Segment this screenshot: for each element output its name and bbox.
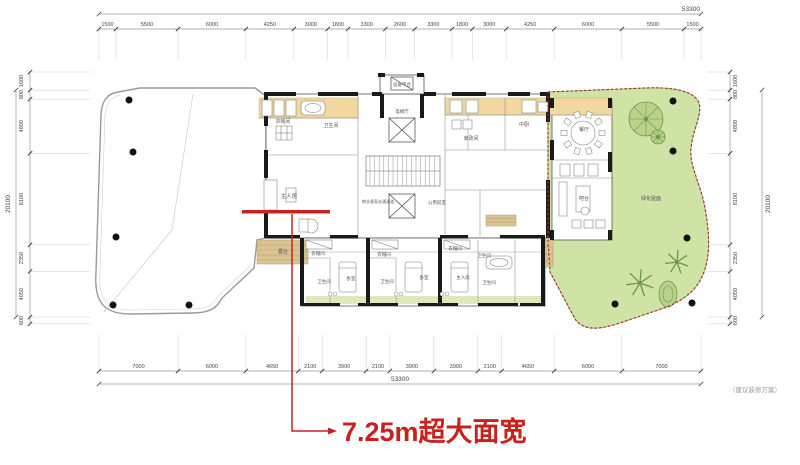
dim-label: 4650 [522,364,534,370]
bedroom-wing [302,238,545,306]
dim-label: 4800 [733,120,739,132]
dim-label: 800 [19,90,25,99]
dim-label: 6000 [206,22,218,28]
dimension-col-left: 16008004800810023504050600 [19,70,32,326]
witness-lines-left [30,72,90,324]
dim-label: 2100 [372,364,384,370]
witness-lines-top [99,29,701,60]
dim-label: 7000 [655,364,667,370]
total-height-right: 20100 [765,195,772,213]
total-width-bottom: 53300 [391,376,409,383]
room-label: 中厨 [519,121,529,128]
dim-label: 8100 [733,193,739,205]
renovation-note: （建议装修方案） [729,385,781,394]
dim-label: 2100 [484,364,496,370]
dim-label: 4050 [733,288,739,300]
column-dot [670,98,677,105]
room-label: 电梯厅 [395,108,409,115]
total-width-top: 53300 [682,6,700,13]
column-dot [130,149,137,156]
dimension-row-top: 1500550060004250300018003300260033001800… [97,22,703,31]
dim-label: 1800 [456,22,468,28]
dim-label: 3900 [406,364,418,370]
room-label: 物业垂直交通通道 [362,198,394,204]
dim-label: 600 [19,316,25,325]
dining-table [571,121,595,145]
column-dot [126,97,133,104]
dim-label: 3300 [427,22,439,28]
dim-label: 6000 [206,364,218,370]
column-dot [113,234,120,241]
dim-label: 4250 [524,22,536,28]
room-label: 设备平台 [393,81,411,88]
column-dot [110,302,117,309]
dimension-row-bottom: 7000600046502100390021003900390021004650… [97,364,703,373]
dim-label: 5500 [647,22,659,28]
dim-label: 1500 [101,22,113,28]
column-dot [689,300,696,307]
dim-label: 2350 [733,252,739,264]
room-label: 卫生间 [323,122,338,129]
dim-label: 8100 [19,193,25,205]
dim-label: 4050 [19,288,25,300]
room-label: 餐厅 [579,126,589,133]
dimension-col-right: 16008004800810023504050600 [728,70,739,326]
frontage-annotation: 7.25m超大面宽 [342,416,527,447]
dim-label: 800 [733,90,739,99]
dim-label: 5500 [141,22,153,28]
dim-label: 3000 [305,22,317,28]
room-label: 衣帽间 [377,251,391,258]
room-label: 卧室 [347,275,356,282]
room-label: 家政间 [463,135,478,142]
room-label: 衣帽间 [311,250,325,257]
balcony-strip [306,296,542,304]
witness-lines-bottom [99,335,701,371]
dim-label: 3900 [338,364,350,370]
column-dot [186,302,193,309]
room-label: 衣帽间 [275,118,290,125]
dim-label: 6000 [582,22,594,28]
room-label: 吧台 [579,195,589,202]
dim-label: 4800 [19,120,25,132]
room-label: 卫生间 [317,278,331,285]
column-dot [612,301,619,308]
dim-label: 3300 [361,22,373,28]
dim-label: 4250 [264,22,276,28]
dim-label: 3900 [450,364,462,370]
terrace-outline [96,88,266,314]
dim-label: 2100 [304,364,316,370]
dim-label: 1600 [19,75,25,87]
dim-label: 3000 [483,22,495,28]
total-height-left: 20100 [5,195,12,213]
dim-label: 1500 [686,22,698,28]
room-label: 主人房 [281,192,298,200]
dim-label: 6000 [582,364,594,370]
column-dot [670,148,677,155]
dim-label: 1800 [332,22,344,28]
room-label: 露台 [278,248,288,255]
red-highlight-line [242,210,330,214]
floor-plan-svg: 53300 53300 20100 20100 1500550060004250… [0,0,800,465]
dim-label: 2350 [19,252,25,264]
room-label: 衣帽间 [448,245,462,252]
room-label: 卫生间 [477,252,491,259]
room-label: 卫生间 [380,278,394,285]
dim-label: 600 [733,316,739,325]
witness-lines-right [708,72,730,324]
room-label: 公用前室 [428,199,446,206]
room-label: 主人房 [456,274,470,281]
floor-plan-canvas: 53300 53300 20100 20100 1500550060004250… [0,0,800,465]
room-label: 卧室 [420,274,429,281]
room-label: 绿化屋面 [641,195,661,202]
column-dot [684,235,691,242]
dim-label: 4650 [266,364,278,370]
dim-label: 7000 [132,364,144,370]
dim-label: 1600 [733,75,739,87]
dim-label: 2600 [394,22,406,28]
room-label: 卫生间 [482,279,496,286]
